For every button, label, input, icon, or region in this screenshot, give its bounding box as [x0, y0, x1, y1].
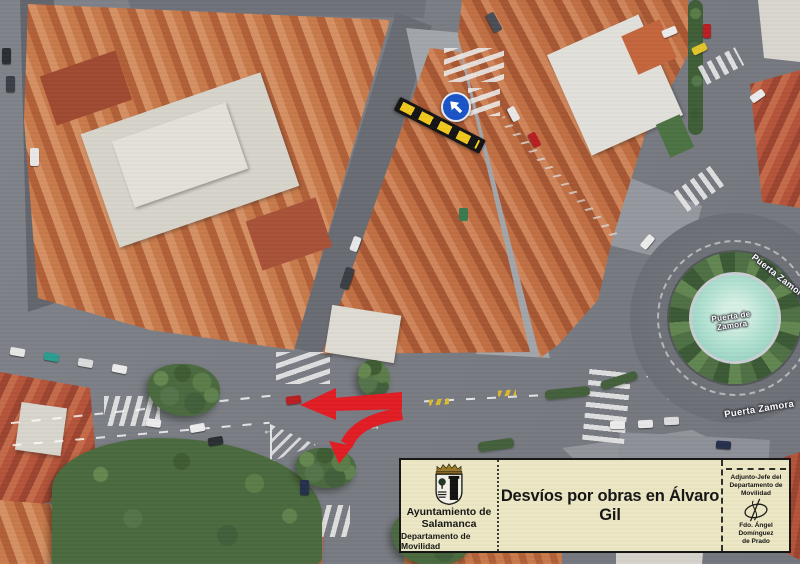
parked-van [43, 352, 59, 362]
car [610, 421, 625, 429]
building-flat-roof [325, 305, 402, 363]
yellow-road-marking [429, 398, 449, 406]
signer-role-line2: Departamento de [729, 482, 782, 489]
municipality-panel: Ayuntamiento de Salamanca Departamento d… [401, 460, 499, 551]
lane-arrow-right: → [368, 421, 382, 432]
signature-icon [738, 498, 774, 522]
dumpster [459, 208, 468, 221]
car [189, 423, 205, 433]
car [286, 395, 302, 405]
parked-van [9, 347, 25, 357]
signature-inner-box: Adjunto-Jefe del Departamento de Movilid… [726, 468, 786, 546]
car [300, 480, 309, 495]
signer-name-line1: Fdo. Ángel Domínguez [738, 522, 773, 537]
car [716, 440, 732, 449]
detour-title: Desvíos por obras en Álvaro Gil [499, 487, 721, 525]
parked-van [111, 364, 127, 375]
building-courtyard [15, 402, 67, 456]
crosswalk [698, 47, 744, 84]
signer-role-line1: Adjunto-Jefe del [731, 474, 782, 481]
signer-role: Adjunto-Jefe del Departamento de Movilid… [729, 474, 782, 498]
green-median [477, 438, 514, 453]
crosswalk [444, 48, 504, 82]
detour-arrow-west-head [300, 388, 336, 420]
arrow-up-left-glyph [446, 97, 466, 117]
detour-info-box: Ayuntamiento de Salamanca Departamento d… [399, 458, 791, 553]
green-median [545, 386, 591, 401]
parked-car [6, 76, 15, 92]
mandatory-turn-left-sign-icon [441, 92, 471, 122]
crosswalk [468, 88, 500, 116]
org-name-line2: Salamanca [422, 518, 477, 530]
tree-cluster [358, 360, 390, 398]
crosswalk [276, 352, 330, 384]
aerial-detour-map: ← ← → Puerta Zamora Puerta Zamora Puerta… [0, 0, 800, 564]
parked-van [77, 358, 93, 368]
signature-panel: Adjunto-Jefe del Departamento de Movilid… [721, 460, 789, 551]
car [703, 24, 711, 38]
signer-name: Fdo. Ángel Domínguez de Prado [726, 522, 786, 546]
salamanca-coat-of-arms-icon [430, 463, 468, 506]
title-panel: Desvíos por obras en Álvaro Gil [499, 460, 721, 551]
parked-car [2, 48, 11, 64]
signer-name-line2: de Prado [742, 538, 770, 545]
car [638, 420, 653, 429]
org-department: Departamento de Movilidad [401, 531, 497, 551]
signer-role-line3: Movilidad [741, 490, 771, 497]
parked-van [30, 148, 39, 166]
lane-arrow-left: ← [262, 425, 276, 436]
car [146, 418, 162, 428]
crosswalk [674, 164, 727, 212]
org-name-line1: Ayuntamiento de [407, 506, 492, 518]
car [664, 417, 679, 426]
